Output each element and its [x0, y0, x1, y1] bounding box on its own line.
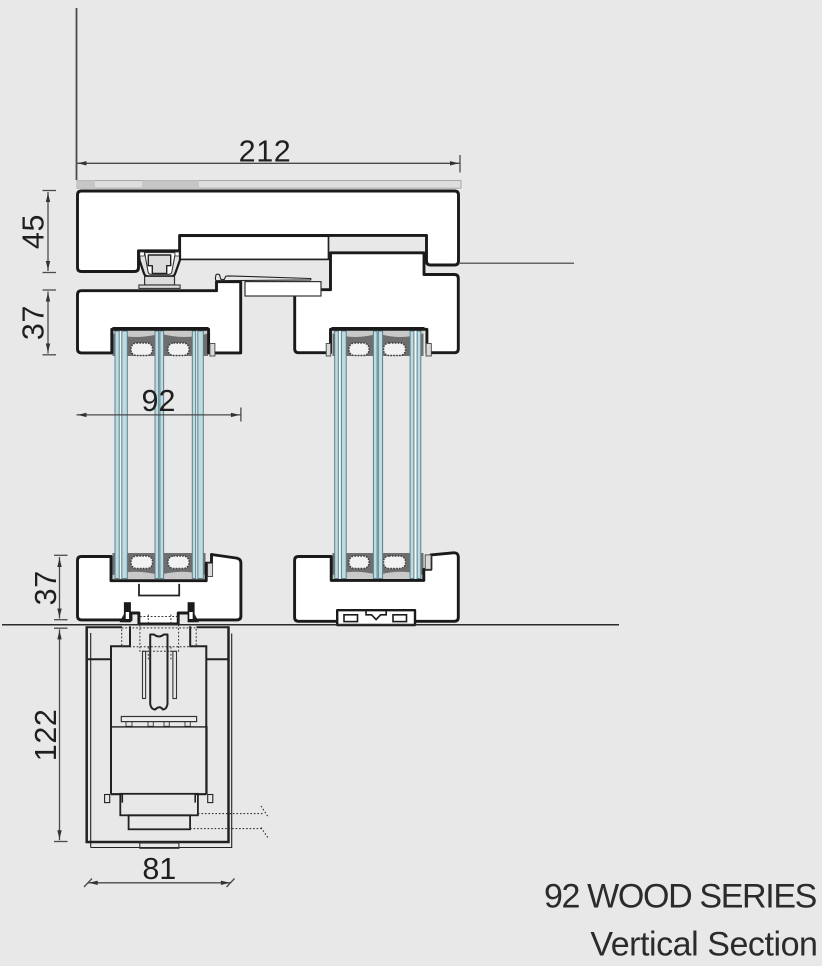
svg-text:92: 92 — [142, 384, 176, 418]
svg-text:37: 37 — [29, 570, 63, 605]
svg-text:Vertical Section: Vertical Section — [590, 926, 817, 964]
svg-text:45: 45 — [17, 214, 51, 249]
svg-text:37: 37 — [17, 305, 51, 340]
svg-text:81: 81 — [142, 852, 176, 886]
svg-text:212: 212 — [239, 134, 292, 168]
svg-text:92 WOOD SERIES: 92 WOOD SERIES — [544, 878, 817, 916]
svg-text:122: 122 — [29, 708, 63, 761]
